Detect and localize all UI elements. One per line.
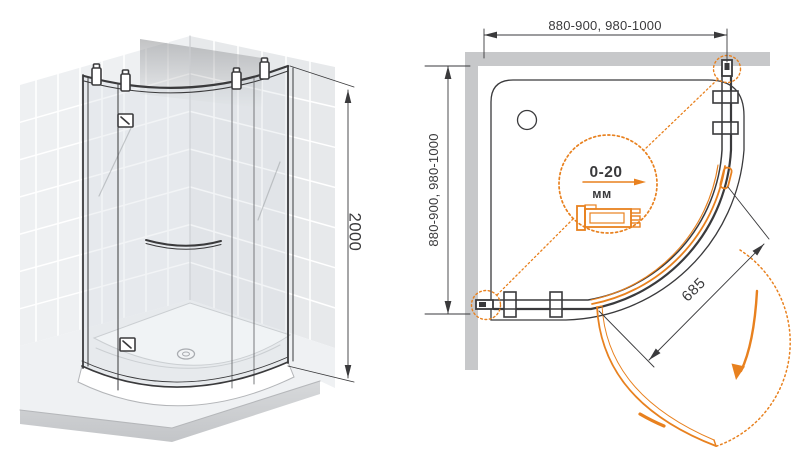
width-dimension-label: 880-900, 980-1000 [548,18,661,33]
height-dimension-label: 2000 [346,213,364,252]
shower-enclosure-technical-drawing: 2000 [0,0,800,474]
door-handle-open-icon [640,414,664,426]
arrow-left-icon [484,32,497,39]
plan-left-wall [465,52,478,370]
callout-circle [559,135,657,233]
glass-panels [83,66,288,386]
perspective-view: 2000 [20,36,364,442]
arrow-down-icon [445,301,452,314]
depth-dimension-label: 880-900, 980-1000 [426,133,441,246]
door-opening-dimension-label: 685 [678,274,709,305]
adjustment-unit-label: мм [592,187,612,201]
swing-direction-arrow [741,291,757,371]
arrow-up-icon [445,66,452,79]
plan-view: 685 0-20 мм [425,18,790,447]
arrow-down-icon [345,365,352,378]
adjustment-range-label: 0-20 [589,164,622,181]
door-swing-path [714,250,790,447]
arrow-up-icon [345,90,352,103]
drawing-canvas: 2000 [0,0,800,474]
depth-dimension: 880-900, 980-1000 [425,66,470,314]
arrow-right-icon [714,32,727,39]
